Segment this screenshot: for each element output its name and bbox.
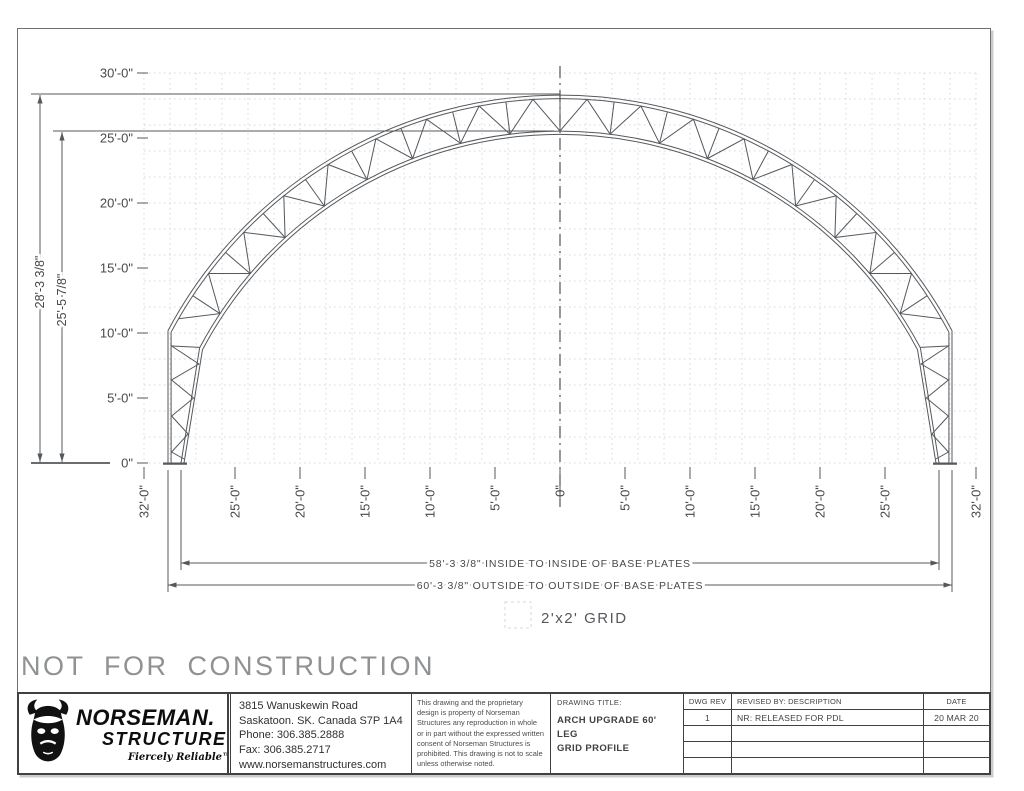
x-axis-label: 32'-0" [137, 485, 152, 519]
dwg-rev-header: DWG REV [684, 694, 731, 710]
revision-description-column: REVISED BY: DESCRIPTION NR: RELEASED FOR… [732, 694, 924, 773]
x-axis-label: 0" [553, 485, 568, 497]
grid-swatch [505, 602, 531, 628]
y-axis-label: 0" [121, 456, 133, 471]
address-line: Saskatoon. SK. Canada S7P 1A4 [239, 714, 411, 729]
dwg-rev-column: DWG REV 1 [684, 694, 732, 773]
fax-line: Fax: 306.385.2717 [239, 743, 411, 758]
date-header: DATE [924, 694, 989, 710]
disclaimer: This drawing and the proprietary design … [412, 694, 551, 773]
dwg-rev-value: 1 [684, 710, 731, 726]
phone-line: Phone: 306.385.2888 [239, 728, 411, 743]
svg-text:58'-3 3/8" INSIDE TO INSIDE OF: 58'-3 3/8" INSIDE TO INSIDE OF BASE PLAT… [429, 558, 691, 570]
x-axis-label: 5'-0" [488, 485, 503, 511]
viking-head-logo-icon [24, 698, 72, 770]
website-line: www.norsemanstructures.com [239, 758, 411, 773]
not-for-construction-watermark: NOT FOR CONSTRUCTION [21, 651, 435, 682]
x-axis-label: 15'-0" [748, 485, 763, 519]
address-block: 3815 Wanuskewin Road Saskatoon. SK. Cana… [228, 694, 412, 773]
brand-text: NORSEMAN. STRUCTURES Fiercely Reliable™ [76, 705, 228, 763]
drawing-sheet: { "colors": { "line": "#55585c", "grid":… [0, 0, 1024, 791]
title-block: NORSEMAN. STRUCTURES Fiercely Reliable™ … [17, 692, 991, 775]
drawing-title: ARCH UPGRADE 60' LEG GRID PROFILE [557, 714, 677, 755]
logo-cell: NORSEMAN. STRUCTURES Fiercely Reliable™ [19, 694, 228, 773]
x-axis-label: 10'-0" [423, 485, 438, 519]
revision-date: 20 MAR 20 [924, 710, 989, 726]
x-axis-label: 25'-0" [878, 485, 893, 519]
x-axis-label: 5'-0" [618, 485, 633, 511]
y-axis-label: 30'-0" [100, 66, 134, 81]
revised-by-header: REVISED BY: DESCRIPTION [732, 694, 923, 710]
y-axis-label: 15'-0" [100, 261, 134, 276]
svg-text:28'-3 3/8": 28'-3 3/8" [33, 256, 47, 309]
revision-description: NR: RELEASED FOR PDL [732, 710, 923, 726]
drawing-title-cell: DRAWING TITLE: ARCH UPGRADE 60' LEG GRID… [551, 694, 684, 773]
address-line: 3815 Wanuskewin Road [239, 699, 411, 714]
x-axis-label: 20'-0" [293, 485, 308, 519]
svg-text:60'-3 3/8" OUTSIDE TO OUTSIDE: 60'-3 3/8" OUTSIDE TO OUTSIDE OF BASE PL… [417, 580, 704, 592]
date-column: DATE 20 MAR 20 [924, 694, 989, 773]
y-axis-label: 5'-0" [107, 391, 133, 406]
x-axis-label: 32'-0" [969, 485, 984, 519]
x-axis-label: 10'-0" [683, 485, 698, 519]
svg-text:25'-5 7/8": 25'-5 7/8" [55, 274, 69, 327]
x-axis-label: 25'-0" [228, 485, 243, 519]
y-axis-label: 10'-0" [100, 326, 134, 341]
x-axis-label: 15'-0" [358, 485, 373, 519]
x-axis-label: 20'-0" [813, 485, 828, 519]
brand-name-2: STRUCTURES [102, 729, 228, 750]
brand-name: NORSEMAN. [76, 705, 228, 731]
y-axis-label: 20'-0" [100, 196, 134, 211]
brand-tagline: Fiercely Reliable™ [128, 752, 228, 763]
y-axis-label: 25'-0" [100, 131, 134, 146]
drawing-title-label: DRAWING TITLE: [557, 698, 677, 707]
grid-legend-label: 2'x2' GRID [541, 610, 628, 627]
